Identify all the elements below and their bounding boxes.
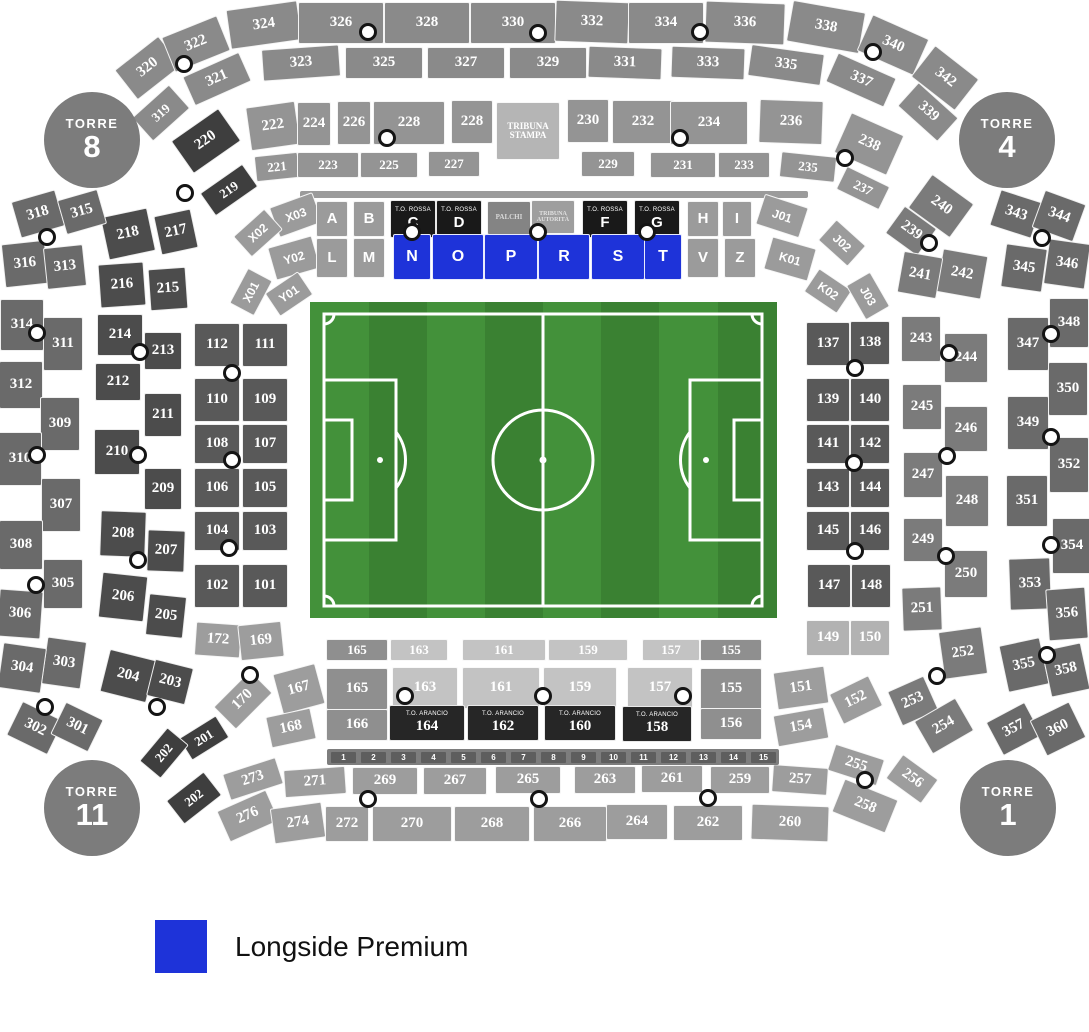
row-number-6: 6 xyxy=(481,752,506,763)
view-marker-icon xyxy=(223,364,241,382)
section-144: 144 xyxy=(850,468,890,508)
section-155: 155 xyxy=(700,639,762,661)
section-266: 266 xyxy=(533,806,607,842)
section-351: 351 xyxy=(1006,475,1048,527)
center-spot xyxy=(540,457,547,464)
section-213: 213 xyxy=(144,332,182,370)
section-270: 270 xyxy=(372,806,452,842)
view-marker-icon xyxy=(1033,229,1051,247)
section-t[interactable]: T xyxy=(644,234,682,280)
section-f: T.O. ROSSAF xyxy=(582,200,628,238)
section-227: 227 xyxy=(428,151,480,177)
view-marker-icon xyxy=(223,451,241,469)
legend: Longside Premium xyxy=(155,920,468,973)
section-165: 165 xyxy=(326,668,388,710)
section-h: H xyxy=(687,201,719,237)
section-l: L xyxy=(316,238,348,278)
section-107: 107 xyxy=(242,424,288,464)
section-327: 327 xyxy=(427,47,505,79)
section-248: 248 xyxy=(945,475,989,527)
view-marker-icon xyxy=(937,547,955,565)
view-marker-icon xyxy=(220,539,238,557)
section-145: 145 xyxy=(806,511,850,551)
view-marker-icon xyxy=(928,667,946,685)
section-157: 157 xyxy=(642,639,700,661)
section-137: 137 xyxy=(806,322,850,366)
section-159: 159 xyxy=(543,667,617,709)
section-y01: Y01 xyxy=(265,271,314,317)
section-s[interactable]: S xyxy=(591,234,645,280)
inner-ring-top-edge xyxy=(300,191,808,198)
section-336: 336 xyxy=(704,1,785,46)
section-318: 318 xyxy=(11,189,66,238)
view-marker-icon xyxy=(846,359,864,377)
row-number-7: 7 xyxy=(511,752,536,763)
section-267: 267 xyxy=(423,767,487,795)
section-257: 257 xyxy=(771,764,829,796)
section-229: 229 xyxy=(581,151,635,177)
section-163: 163 xyxy=(390,639,448,661)
section-331: 331 xyxy=(587,46,662,81)
section-r[interactable]: R xyxy=(538,234,590,280)
section-308: 308 xyxy=(0,520,43,570)
section-307: 307 xyxy=(41,478,81,532)
section-352: 352 xyxy=(1049,437,1089,493)
view-marker-icon xyxy=(28,446,46,464)
section-169: 169 xyxy=(237,621,285,661)
section-231: 231 xyxy=(650,152,716,178)
section-143: 143 xyxy=(806,468,850,508)
section-160: T.O. ARANCIO160 xyxy=(544,705,616,741)
section-242: 242 xyxy=(936,248,989,299)
view-marker-icon xyxy=(856,771,874,789)
section-225: 225 xyxy=(360,152,418,178)
view-marker-icon xyxy=(845,454,863,472)
view-marker-icon xyxy=(530,790,548,808)
section-316: 316 xyxy=(1,240,49,288)
section-335: 335 xyxy=(747,44,825,86)
section-350: 350 xyxy=(1048,362,1088,416)
section-241: 241 xyxy=(897,251,944,299)
section-palchi: PALCHI xyxy=(487,201,531,235)
section-151: 151 xyxy=(773,666,830,711)
view-marker-icon xyxy=(938,447,956,465)
section-a: A xyxy=(316,201,348,237)
section-217: 217 xyxy=(153,208,198,255)
view-marker-icon xyxy=(378,129,396,147)
section-i: I xyxy=(722,201,752,237)
section-272: 272 xyxy=(325,806,369,842)
section-k01: K01 xyxy=(763,236,817,281)
row-number-13: 13 xyxy=(691,752,716,763)
section-148: 148 xyxy=(851,564,891,608)
section-201: 201 xyxy=(178,715,229,760)
section-265: 265 xyxy=(495,766,561,794)
penalty-spot-right xyxy=(703,457,709,463)
section-112: 112 xyxy=(194,323,240,367)
section-z: Z xyxy=(724,238,756,278)
football-pitch xyxy=(310,302,777,618)
row-number-8: 8 xyxy=(541,752,566,763)
section-j02: J02 xyxy=(818,219,866,267)
row-number-3: 3 xyxy=(391,752,416,763)
row-number-1: 1 xyxy=(331,752,356,763)
section-329: 329 xyxy=(509,47,587,79)
section-j01: J01 xyxy=(755,194,809,239)
view-marker-icon xyxy=(396,687,414,705)
section-k02: K02 xyxy=(804,268,853,314)
section-212: 212 xyxy=(95,363,141,401)
section-172: 172 xyxy=(194,621,242,658)
view-marker-icon xyxy=(27,576,45,594)
view-marker-icon xyxy=(534,687,552,705)
section-268: 268 xyxy=(454,806,530,842)
section-328: 328 xyxy=(384,2,470,44)
section-d: T.O. ROSSAD xyxy=(436,200,482,238)
view-marker-icon xyxy=(638,223,656,241)
section-164: T.O. ARANCIO164 xyxy=(389,705,465,741)
section-tribuna-stampa: TRIBUNA STAMPA xyxy=(496,102,560,160)
section-149: 149 xyxy=(806,620,850,656)
section-230: 230 xyxy=(567,99,609,143)
row-number-9: 9 xyxy=(571,752,596,763)
section-232: 232 xyxy=(612,100,674,144)
view-marker-icon xyxy=(36,698,54,716)
view-marker-icon xyxy=(1042,325,1060,343)
section-323: 323 xyxy=(261,44,341,81)
section-155: 155 xyxy=(700,668,762,710)
view-marker-icon xyxy=(920,234,938,252)
section-152: 152 xyxy=(829,675,883,725)
section-256: 256 xyxy=(885,754,938,804)
tower-4: TORRE4 xyxy=(959,92,1055,188)
row-number-15: 15 xyxy=(751,752,776,763)
section-260: 260 xyxy=(750,804,829,843)
stadium-seat-map: Longside Premium 32032232432632833033233… xyxy=(0,0,1089,1032)
section-236: 236 xyxy=(758,99,823,145)
section-221: 221 xyxy=(254,152,300,182)
section-304: 304 xyxy=(0,642,47,694)
section-218: 218 xyxy=(100,207,156,260)
section-219: 219 xyxy=(200,164,259,217)
view-marker-icon xyxy=(131,343,149,361)
section-106: 106 xyxy=(194,468,240,508)
row-number-11: 11 xyxy=(631,752,656,763)
view-marker-icon xyxy=(671,129,689,147)
section-247: 247 xyxy=(903,452,943,498)
legend-label: Longside Premium xyxy=(235,931,468,963)
section-216: 216 xyxy=(98,261,147,308)
section-102: 102 xyxy=(194,564,240,608)
view-marker-icon xyxy=(38,228,56,246)
view-marker-icon xyxy=(529,223,547,241)
section-246: 246 xyxy=(944,406,988,452)
section-251: 251 xyxy=(901,586,943,631)
tower-1: TORRE1 xyxy=(960,760,1056,856)
legend-color-swatch xyxy=(155,920,207,973)
section-312: 312 xyxy=(0,361,43,409)
tower-8: TORRE8 xyxy=(44,92,140,188)
view-marker-icon xyxy=(836,149,854,167)
section-224: 224 xyxy=(297,102,331,146)
section-228: 228 xyxy=(451,100,493,144)
section-226: 226 xyxy=(337,101,371,145)
section-161: 161 xyxy=(462,639,546,661)
section-223: 223 xyxy=(297,152,359,178)
section-261: 261 xyxy=(641,765,703,793)
section-165: 165 xyxy=(326,639,388,661)
section-325: 325 xyxy=(345,47,423,79)
view-marker-icon xyxy=(1042,428,1060,446)
section-211: 211 xyxy=(144,393,182,437)
section-159: 159 xyxy=(548,639,628,661)
section-332: 332 xyxy=(554,0,629,44)
view-marker-icon xyxy=(403,223,421,241)
section-222: 222 xyxy=(245,101,301,152)
section-220: 220 xyxy=(171,108,241,174)
section-313: 313 xyxy=(43,244,87,290)
section-158: T.O. ARANCIO158 xyxy=(622,706,692,742)
view-marker-icon xyxy=(674,687,692,705)
view-marker-icon xyxy=(864,43,882,61)
section-205: 205 xyxy=(145,593,187,639)
section-154: 154 xyxy=(773,707,830,748)
section-301: 301 xyxy=(50,702,104,753)
section-m: M xyxy=(353,238,385,278)
section-324: 324 xyxy=(226,0,303,50)
section-347: 347 xyxy=(1007,317,1049,371)
section-168: 168 xyxy=(265,708,317,749)
section-262: 262 xyxy=(673,805,743,841)
section-235: 235 xyxy=(779,151,837,183)
section-162: T.O. ARANCIO162 xyxy=(467,705,539,741)
section-147: 147 xyxy=(807,564,851,608)
section-110: 110 xyxy=(194,378,240,422)
section-v: V xyxy=(687,238,719,278)
section-b: B xyxy=(353,201,385,237)
section-105: 105 xyxy=(242,468,288,508)
section-306: 306 xyxy=(0,589,44,640)
row-number-4: 4 xyxy=(421,752,446,763)
section-360: 360 xyxy=(1029,701,1086,756)
view-marker-icon xyxy=(129,446,147,464)
section-j03: J03 xyxy=(846,272,890,321)
section-161: 161 xyxy=(462,667,540,709)
view-marker-icon xyxy=(129,551,147,569)
section-215: 215 xyxy=(148,267,189,312)
penalty-spot-left xyxy=(377,457,383,463)
section-140: 140 xyxy=(850,378,890,422)
section-305: 305 xyxy=(43,559,83,609)
section-252: 252 xyxy=(938,626,988,680)
section-233: 233 xyxy=(718,152,770,178)
section-245: 245 xyxy=(902,384,942,430)
row-number-2: 2 xyxy=(361,752,386,763)
section-166: 166 xyxy=(326,709,388,741)
view-marker-icon xyxy=(1038,646,1056,664)
section-207: 207 xyxy=(146,529,185,572)
section-303: 303 xyxy=(41,636,87,689)
section-333: 333 xyxy=(670,46,745,81)
view-marker-icon xyxy=(148,698,166,716)
view-marker-icon xyxy=(28,324,46,342)
section-259: 259 xyxy=(710,766,770,794)
section-139: 139 xyxy=(806,378,850,422)
section-103: 103 xyxy=(242,511,288,551)
section-167: 167 xyxy=(272,663,325,715)
view-marker-icon xyxy=(359,23,377,41)
section-309: 309 xyxy=(40,397,80,451)
view-marker-icon xyxy=(359,790,377,808)
view-marker-icon xyxy=(529,24,547,42)
section-274: 274 xyxy=(270,802,327,845)
view-marker-icon xyxy=(176,184,194,202)
section-311: 311 xyxy=(43,317,83,371)
view-marker-icon xyxy=(691,23,709,41)
view-marker-icon xyxy=(940,344,958,362)
section-263: 263 xyxy=(574,766,636,794)
section-345: 345 xyxy=(1000,243,1048,292)
section-243: 243 xyxy=(901,316,941,362)
section-141: 141 xyxy=(806,424,850,464)
section-156: 156 xyxy=(700,708,762,740)
view-marker-icon xyxy=(175,55,193,73)
row-number-10: 10 xyxy=(601,752,626,763)
row-number-5: 5 xyxy=(451,752,476,763)
section-264: 264 xyxy=(606,804,668,840)
row-number-12: 12 xyxy=(661,752,686,763)
view-marker-icon xyxy=(1042,536,1060,554)
section-338: 338 xyxy=(786,0,866,54)
section-101: 101 xyxy=(242,564,288,608)
tower-11: TORRE11 xyxy=(44,760,140,856)
section-p[interactable]: P xyxy=(484,234,538,280)
section-356: 356 xyxy=(1045,587,1089,642)
section-150: 150 xyxy=(850,620,890,656)
section-209: 209 xyxy=(144,468,182,510)
section-202: 202 xyxy=(166,771,222,824)
row-number-14: 14 xyxy=(721,752,746,763)
section-206: 206 xyxy=(98,572,149,623)
section-o[interactable]: O xyxy=(432,234,484,280)
section-202: 202 xyxy=(139,727,189,779)
view-marker-icon xyxy=(241,666,259,684)
section-355: 355 xyxy=(998,637,1049,693)
section-109: 109 xyxy=(242,378,288,422)
view-marker-icon xyxy=(699,789,717,807)
section-346: 346 xyxy=(1043,238,1089,289)
view-marker-icon xyxy=(846,542,864,560)
section-271: 271 xyxy=(283,766,347,798)
section-315: 315 xyxy=(57,189,107,235)
section-111: 111 xyxy=(242,323,288,367)
